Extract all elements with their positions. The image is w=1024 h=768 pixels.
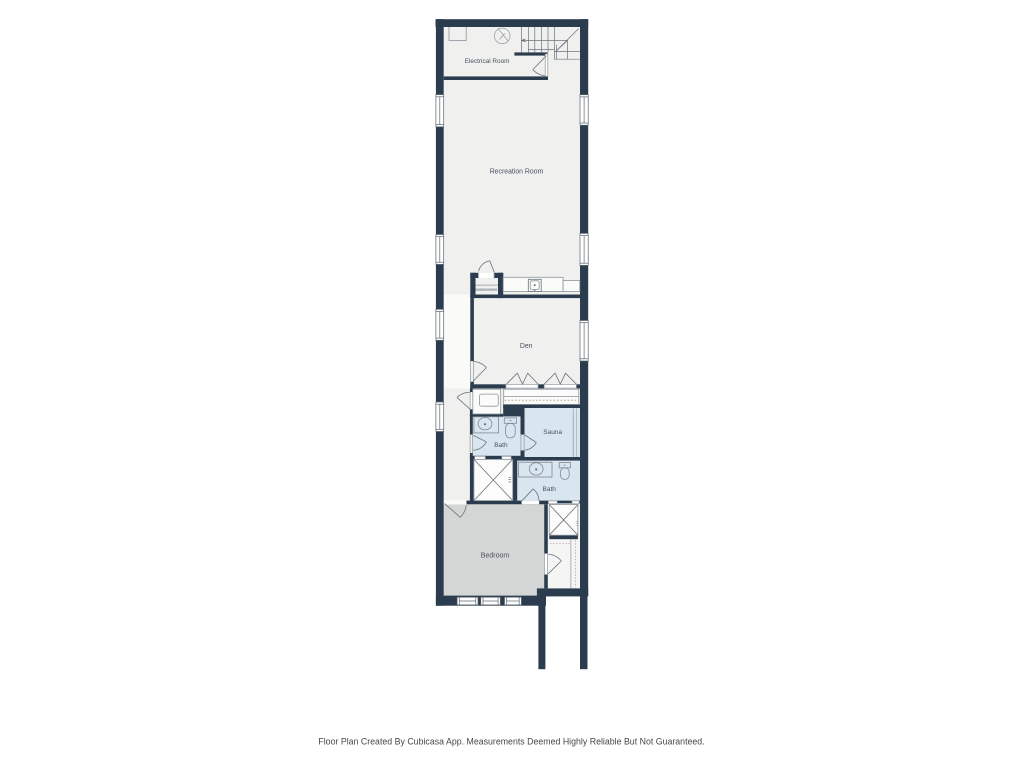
svg-text:Bath: Bath: [543, 486, 557, 493]
svg-text:Bath: Bath: [494, 442, 508, 449]
svg-text:Den: Den: [520, 343, 533, 350]
svg-text:Floor Plan Created By Cubicasa: Floor Plan Created By Cubicasa App. Meas…: [318, 737, 704, 747]
svg-text:Recreation Room: Recreation Room: [490, 169, 544, 176]
svg-text:Sauna: Sauna: [543, 429, 562, 436]
svg-text:Electrical Room: Electrical Room: [465, 58, 510, 65]
svg-text:Bedroom: Bedroom: [481, 553, 510, 560]
